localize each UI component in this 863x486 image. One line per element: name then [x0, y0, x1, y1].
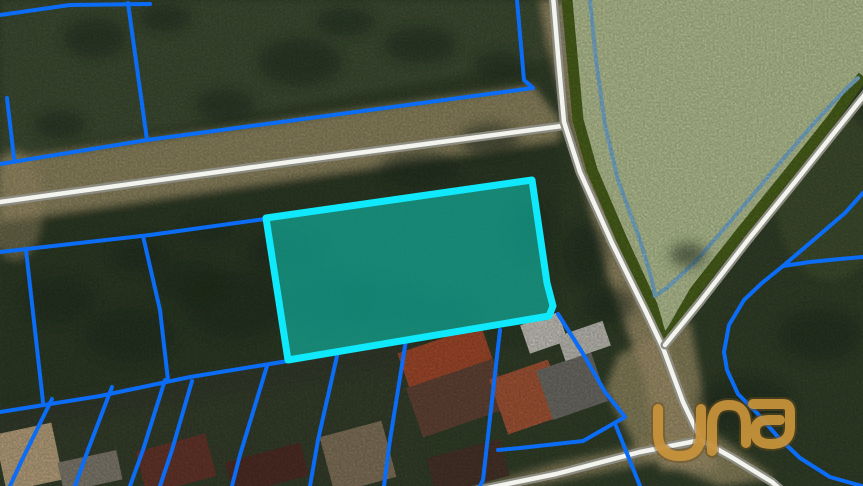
satellite-map	[0, 0, 863, 486]
map-viewport[interactable]: una	[0, 0, 863, 486]
